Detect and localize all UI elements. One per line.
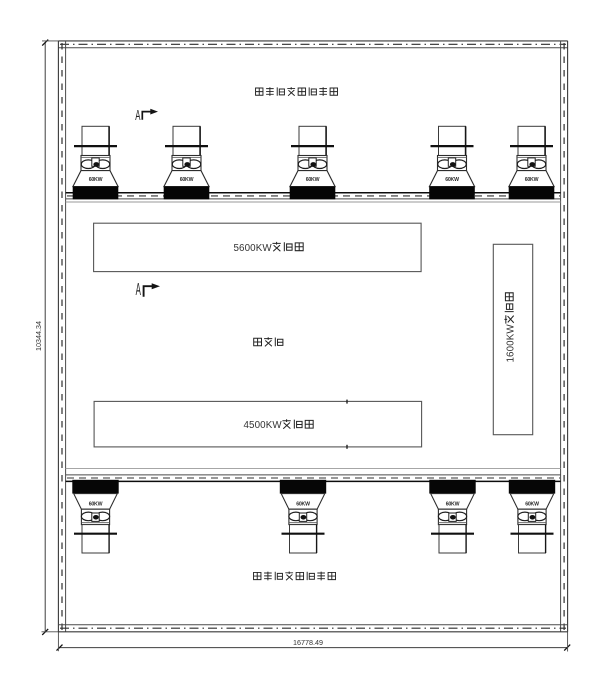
svg-text:60KW: 60KW: [525, 177, 539, 183]
svg-text:10344.34: 10344.34: [34, 321, 43, 351]
svg-text:16778.49: 16778.49: [293, 638, 323, 647]
svg-text:A: A: [136, 280, 142, 299]
svg-text:60KW: 60KW: [180, 177, 194, 183]
svg-text:4500KW: 4500KW: [244, 420, 283, 431]
svg-text:5600KW: 5600KW: [234, 243, 273, 254]
svg-text:60KW: 60KW: [296, 501, 310, 507]
svg-text:A: A: [135, 106, 140, 124]
svg-text:60KW: 60KW: [89, 501, 103, 507]
svg-text:60KW: 60KW: [446, 501, 460, 507]
svg-text:1600KW: 1600KW: [505, 324, 516, 363]
svg-text:60KW: 60KW: [445, 177, 459, 183]
svg-text:60KW: 60KW: [525, 501, 539, 507]
svg-text:60KW: 60KW: [89, 177, 103, 183]
svg-text:60KW: 60KW: [306, 177, 320, 183]
